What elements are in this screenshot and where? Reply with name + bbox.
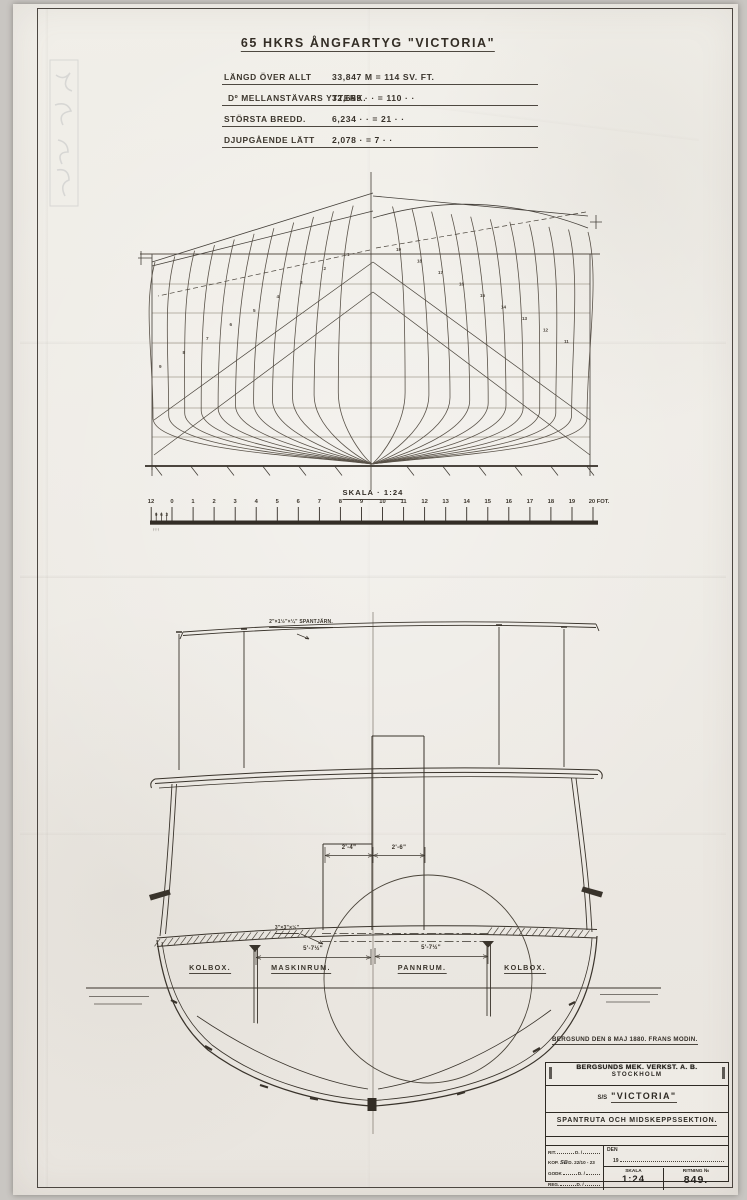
deck-angle-note: 3"×3"×½" [275, 926, 299, 934]
scale-and-number-cells: SKALA 1:24 RITNING № 849. [604, 1168, 728, 1190]
svg-text:11: 11 [564, 339, 569, 344]
svg-text:7: 7 [206, 336, 209, 341]
ship-prefix: S/S [597, 1095, 607, 1101]
field-godk: GODKD. / [548, 1170, 601, 1176]
ruler-tick-label: 3 [234, 499, 237, 505]
svg-text:3: 3 [300, 280, 303, 285]
approval-column: RIT.D. / KOP.SBD. 22/10 - 23 GODKD. / RE… [546, 1146, 604, 1190]
ruler-tick-label: 17 [527, 499, 533, 505]
drawing-number-cell: RITNING № 849. [664, 1168, 728, 1190]
ruler-tick-label: 4 [255, 499, 258, 505]
compartment-label: KOLBOX. [504, 964, 546, 974]
title-block-header: BERGSUNDS MEK. VERKST. A. B. STOCKHOLM [546, 1063, 728, 1086]
ruler-tick-label: 7 [318, 499, 321, 505]
ruler-tick-label: 13 [442, 499, 448, 505]
ruler-tick-label: 6 [160, 512, 162, 517]
svg-text:16: 16 [459, 282, 465, 287]
svg-text:17: 17 [438, 270, 444, 275]
spec-table: LÄNGD ÖVER ALLT 33,847 M = 114 SV. FT. D… [222, 64, 538, 148]
field-rit: RIT.D. / [548, 1149, 601, 1155]
svg-text:14: 14 [501, 305, 507, 310]
boiler-room-dim: 5'-7½" [421, 945, 441, 952]
ruler-tick-label: 3 [166, 512, 168, 517]
ruler-tick-label: 11 [400, 499, 406, 505]
compartment-label: KOLBOX. [189, 964, 231, 974]
company-name: BERGSUNDS MEK. VERKST. A. B. [546, 1064, 728, 1071]
ruler-tick-label: ↑↑↑ [153, 527, 160, 532]
svg-text:8: 8 [183, 350, 186, 355]
ruler-tick-label: 10 [379, 499, 385, 505]
ruler-tick-label: 0 [170, 499, 173, 505]
spec-row: Dº MELLANSTÄVARS YTTERK. 32,659 · · = 11… [222, 85, 538, 106]
drawing-number: 849. [664, 1174, 728, 1186]
drawing-subtitle-row: SPANTRUTA OCH MIDSKEPPSSEKTION. [546, 1113, 728, 1137]
field-reg: REG.D. / [548, 1181, 601, 1187]
frame-iron-note: 2"×1½"×¼" SPANTJÄRN. [269, 620, 333, 628]
ruler-tick-label: 12 [148, 499, 154, 505]
ruler-tick-label: 16 [506, 499, 512, 505]
deck-hatching [155, 927, 590, 946]
field-den: DEN 19 [604, 1146, 728, 1167]
ruler-tick-label: 18 [548, 499, 554, 505]
drawing-title: 65 HKRS ÅNGFARTYG "VICTORIA" [241, 36, 495, 52]
ruler-tick-label: 15 [485, 499, 491, 505]
field-kop: KOP.SBD. 22/10 - 23 [548, 1160, 601, 1166]
scanned-drawing-sheet: 123456789191817161514131211 [0, 0, 747, 1200]
archive-stamp-icon [50, 60, 78, 206]
svg-text:15: 15 [480, 293, 486, 298]
casing-dim-right: 2'-6" [392, 845, 406, 852]
spec-row: LÄNGD ÖVER ALLT 33,847 M = 114 SV. FT. [222, 64, 538, 85]
ruler-tick-label: 9 [360, 499, 363, 505]
bodyplan-baseline-ticks [155, 467, 594, 476]
registration-mark [722, 1067, 725, 1079]
ruler-tick-label: 6 [297, 499, 300, 505]
registration-mark [549, 1067, 552, 1079]
casing-dim-left: 2'-4" [342, 845, 356, 852]
svg-text:19: 19 [396, 247, 402, 252]
svg-text:18: 18 [417, 259, 423, 264]
svg-text:13: 13 [522, 316, 528, 321]
signature-line: BERGSUND DEN 8 MAJ 1880. FRANS MODIN. [552, 1036, 698, 1045]
title-block-fields: RIT.D. / KOP.SBD. 22/10 - 23 GODKD. / RE… [546, 1146, 728, 1190]
scale-value: 1:24 [604, 1174, 663, 1185]
title-block-spacer [546, 1137, 728, 1146]
scale-cell: SKALA 1:24 [604, 1168, 664, 1190]
initials: SB [559, 1160, 568, 1166]
svg-text:9: 9 [159, 364, 162, 369]
ship-name-row: S/S"VICTORIA" [546, 1086, 728, 1113]
spec-row: DJUPGÅENDE LÄTT 2,078 · = 7 · · [222, 127, 538, 148]
spec-row: STÖRSTA BREDD. 6,234 · · = 21 · · [222, 106, 538, 127]
ruler-tick-label: 14 [463, 499, 469, 505]
title-block: BERGSUNDS MEK. VERKST. A. B. STOCKHOLM S… [545, 1062, 729, 1182]
midship-linework [86, 612, 661, 1134]
ruler-tick-label: 8 [339, 499, 342, 505]
ruler-tick-label: 9 [155, 512, 157, 517]
company-city: STOCKHOLM [546, 1071, 728, 1078]
svg-text:6: 6 [230, 322, 233, 327]
ruler-tick-label: 5 [276, 499, 279, 505]
ruler-tick-label: 2 [212, 499, 215, 505]
compartment-label: PANNRUM. [398, 964, 447, 974]
svg-text:5: 5 [253, 308, 256, 313]
ruler-tick-label: 12 [421, 499, 427, 505]
scale-ruler [151, 507, 598, 524]
drawing-subtitle: SPANTRUTA OCH MIDSKEPPSSEKTION. [557, 1117, 717, 1126]
svg-text:4: 4 [277, 294, 280, 299]
compartment-label: MASKINRUM. [271, 964, 331, 974]
svg-text:1: 1 [347, 252, 350, 257]
engine-room-dim: 5'-7½" [303, 946, 323, 953]
ruler-tick-label: 19 [569, 499, 575, 505]
bodyplan-station-numbers: 123456789191817161514131211 [159, 247, 569, 369]
ship-name: "VICTORIA" [611, 1091, 676, 1103]
ruler-tick-label: 1 [191, 499, 194, 505]
svg-text:12: 12 [543, 328, 549, 333]
scale-caption: SKALA · 1:24 [342, 489, 403, 500]
svg-text:2: 2 [324, 266, 327, 271]
ruler-tick-label: 20 FOT. [589, 499, 610, 505]
drawing-linework: 123456789191817161514131211 [0, 0, 747, 1200]
